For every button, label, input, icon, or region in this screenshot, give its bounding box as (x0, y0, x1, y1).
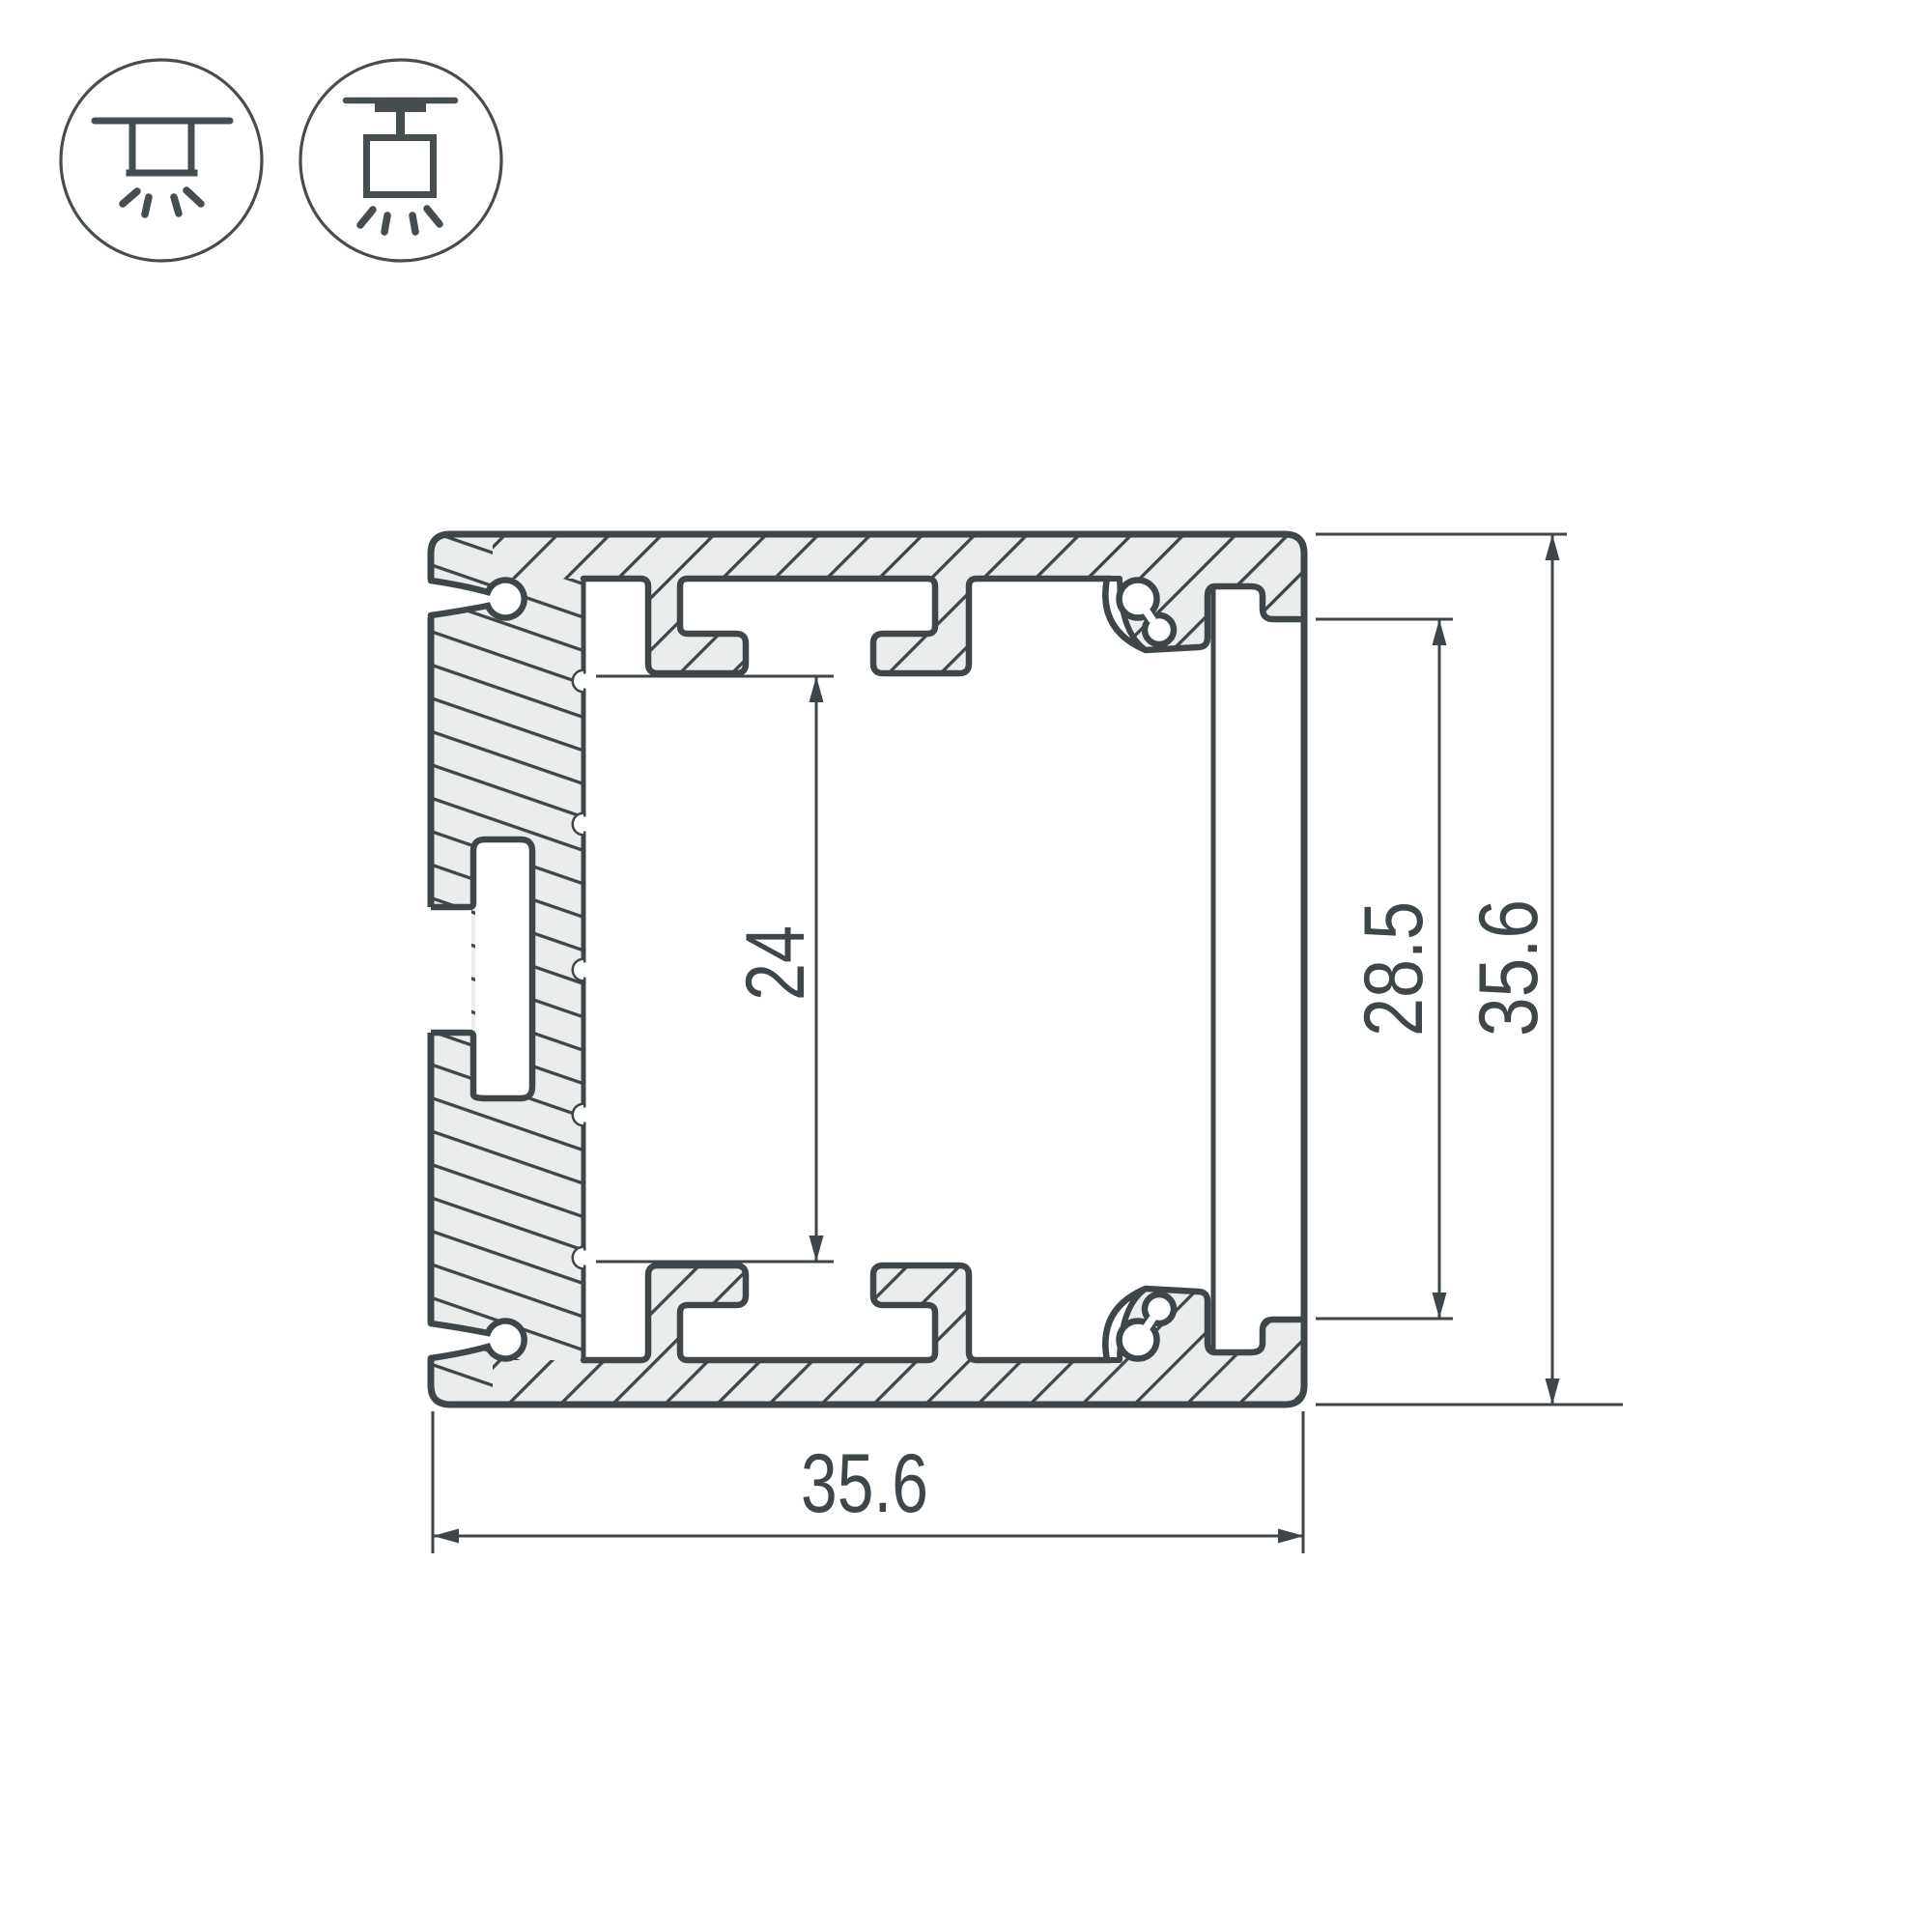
svg-text:24: 24 (729, 925, 822, 1001)
svg-text:28.5: 28.5 (1348, 901, 1440, 1037)
svg-text:35.6: 35.6 (1463, 899, 1555, 1037)
svg-text:35.6: 35.6 (801, 1437, 928, 1530)
